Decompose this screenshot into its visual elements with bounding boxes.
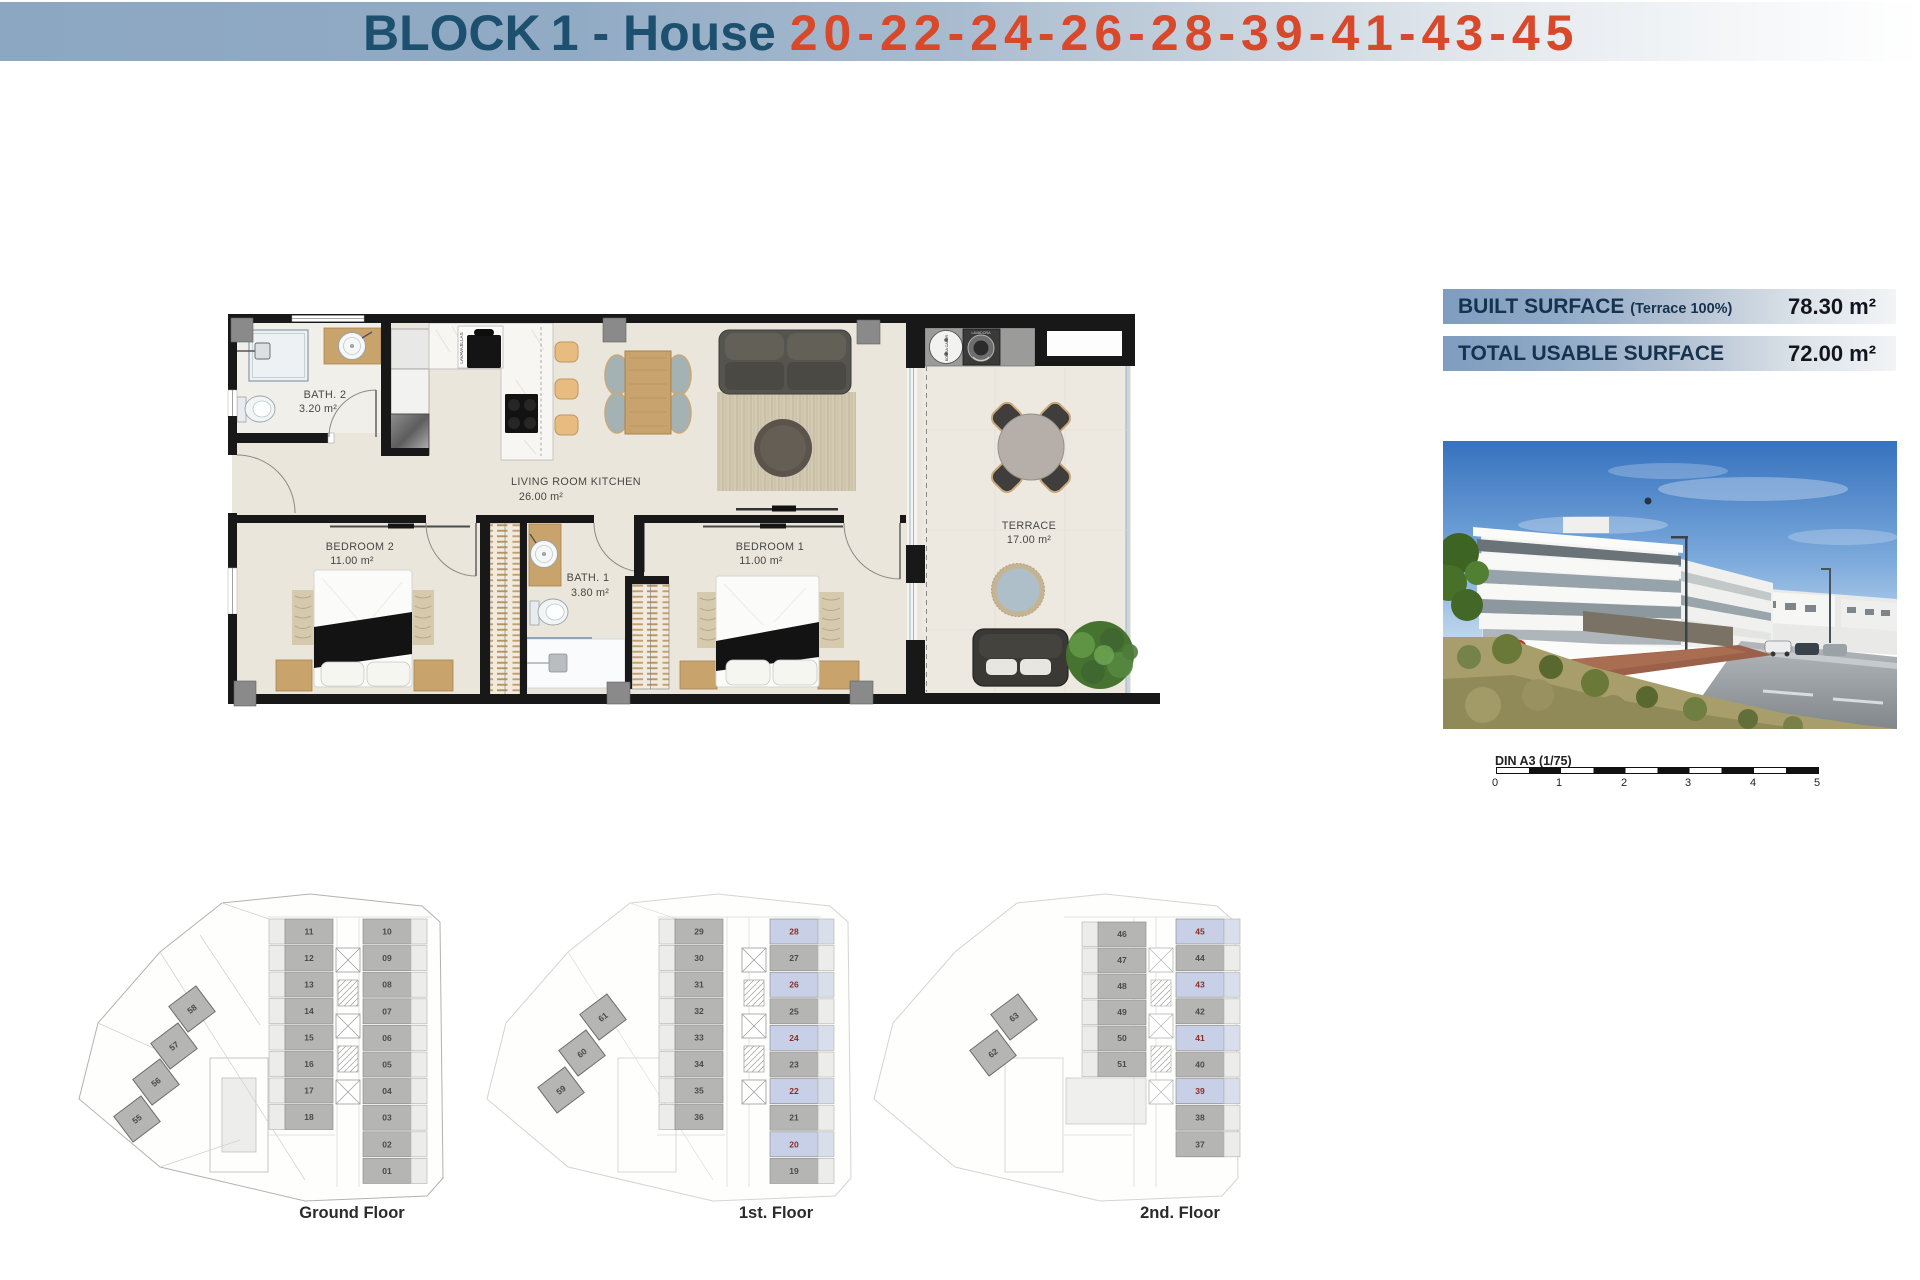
svg-text:3.20 m²: 3.20 m² <box>299 403 337 415</box>
svg-text:BEDROOM 2: BEDROOM 2 <box>326 541 394 553</box>
svg-text:20: 20 <box>789 1139 799 1149</box>
svg-text:36: 36 <box>694 1112 704 1122</box>
svg-text:LIVING ROOM KITCHEN: LIVING ROOM KITCHEN <box>511 476 641 488</box>
svg-text:19: 19 <box>789 1166 799 1176</box>
svg-text:15: 15 <box>304 1033 314 1043</box>
svg-text:BEDROOM 1: BEDROOM 1 <box>736 541 804 553</box>
svg-text:18: 18 <box>304 1112 314 1122</box>
svg-text:31: 31 <box>694 980 704 990</box>
svg-text:11.00 m²: 11.00 m² <box>330 555 374 567</box>
svg-text:06: 06 <box>382 1033 392 1043</box>
svg-text:37: 37 <box>1195 1139 1205 1149</box>
svg-text:32: 32 <box>694 1006 704 1016</box>
svg-text:LAVADORA: LAVADORA <box>971 331 991 335</box>
svg-text:03: 03 <box>382 1113 392 1123</box>
svg-text:40: 40 <box>1195 1060 1205 1070</box>
svg-text:11: 11 <box>305 927 314 937</box>
svg-text:BATH. 1: BATH. 1 <box>567 572 610 584</box>
svg-text:38: 38 <box>1195 1113 1205 1123</box>
svg-text:2nd. Floor: 2nd. Floor <box>1140 1204 1220 1222</box>
svg-text:47: 47 <box>1117 955 1127 965</box>
svg-text:27: 27 <box>789 953 799 963</box>
svg-text:11.00 m²: 11.00 m² <box>739 555 783 567</box>
svg-text:49: 49 <box>1117 1007 1127 1017</box>
svg-text:3.80 m²: 3.80 m² <box>571 587 609 599</box>
svg-text:08: 08 <box>382 980 392 990</box>
svg-text:Ground Floor: Ground Floor <box>299 1204 405 1222</box>
svg-text:04: 04 <box>382 1086 392 1096</box>
svg-text:30: 30 <box>694 953 704 963</box>
svg-text:02: 02 <box>382 1139 392 1149</box>
svg-text:21: 21 <box>789 1113 799 1123</box>
svg-text:23: 23 <box>789 1060 799 1070</box>
svg-text:50: 50 <box>1117 1033 1127 1043</box>
svg-text:39: 39 <box>1195 1086 1205 1096</box>
svg-text:22: 22 <box>789 1086 799 1096</box>
svg-text:01: 01 <box>382 1166 392 1176</box>
svg-text:07: 07 <box>382 1006 392 1016</box>
svg-text:TERRACE: TERRACE <box>1002 520 1056 532</box>
svg-text:12: 12 <box>304 953 314 963</box>
svg-text:48: 48 <box>1117 981 1127 991</box>
svg-text:25: 25 <box>789 1006 799 1016</box>
svg-text:44: 44 <box>1195 953 1205 963</box>
svg-text:34: 34 <box>694 1059 704 1069</box>
svg-text:26: 26 <box>789 980 799 990</box>
svg-text:14: 14 <box>304 1006 314 1016</box>
svg-text:13: 13 <box>304 980 314 990</box>
svg-text:42: 42 <box>1195 1006 1205 1016</box>
svg-text:BATH. 2: BATH. 2 <box>304 389 347 401</box>
svg-text:33: 33 <box>694 1033 704 1043</box>
svg-text:BOMBA CALOR: BOMBA CALOR <box>945 335 949 362</box>
svg-text:09: 09 <box>382 953 392 963</box>
svg-text:16: 16 <box>304 1059 314 1069</box>
svg-text:1st. Floor: 1st. Floor <box>739 1204 814 1222</box>
svg-text:43: 43 <box>1195 980 1205 990</box>
svg-text:17.00 m²: 17.00 m² <box>1007 534 1051 546</box>
svg-text:46: 46 <box>1117 929 1127 939</box>
svg-text:24: 24 <box>789 1033 799 1043</box>
svg-text:05: 05 <box>382 1060 392 1070</box>
svg-text:41: 41 <box>1195 1033 1205 1043</box>
svg-text:28: 28 <box>789 927 799 937</box>
svg-text:26.00 m²: 26.00 m² <box>519 491 563 503</box>
svg-text:35: 35 <box>694 1086 704 1096</box>
svg-text:LAVAVAJILLAS: LAVAVAJILLAS <box>459 332 464 363</box>
svg-text:29: 29 <box>694 927 704 937</box>
svg-text:17: 17 <box>304 1086 314 1096</box>
svg-text:51: 51 <box>1117 1059 1127 1069</box>
svg-text:10: 10 <box>382 927 392 937</box>
svg-text:45: 45 <box>1195 927 1205 937</box>
